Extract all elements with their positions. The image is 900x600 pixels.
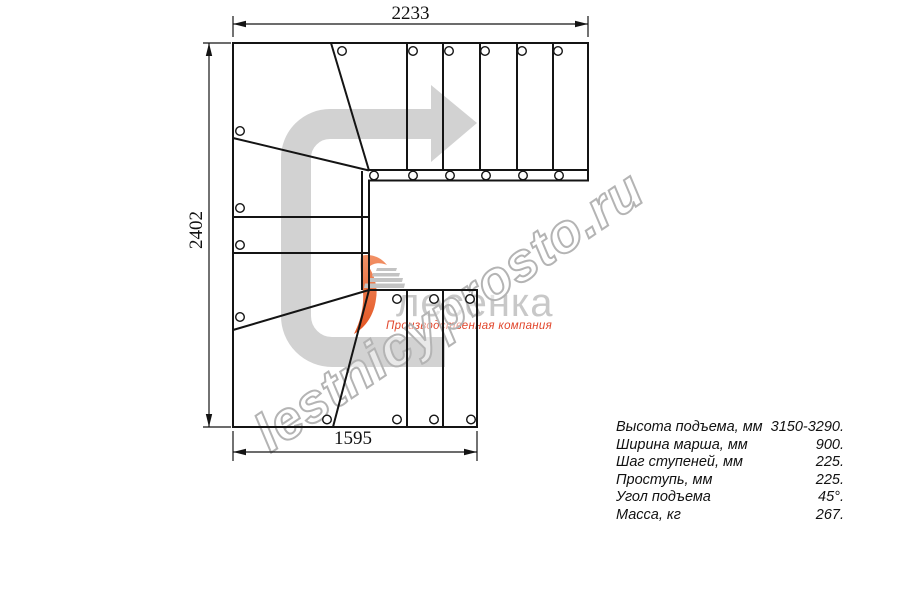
spec-label: Ширина марша, мм bbox=[616, 437, 748, 455]
spec-row-width: Ширина марша, мм 900. bbox=[616, 437, 844, 455]
spec-value: 225. bbox=[816, 454, 844, 472]
stair-drawing-page: { "dimensions": { "top": "2233", "left":… bbox=[0, 0, 900, 600]
spec-row-height: Высота подъема, мм 3150-3290. bbox=[616, 419, 844, 437]
spec-label: Высота подъема, мм bbox=[616, 419, 763, 437]
spec-label: Масса, кг bbox=[616, 507, 681, 525]
spec-value: 900. bbox=[816, 437, 844, 455]
dimension-bottom-label: 1595 bbox=[233, 428, 473, 450]
spec-value: 267. bbox=[816, 507, 844, 525]
spec-row-angle: Угол подъема 45°. bbox=[616, 489, 844, 507]
spec-value: 45°. bbox=[818, 489, 844, 507]
dimension-left-label: 2402 bbox=[186, 189, 208, 271]
spec-label: Угол подъема bbox=[616, 489, 711, 507]
spec-label: Шаг ступеней, мм bbox=[616, 454, 743, 472]
spec-value: 225. bbox=[816, 472, 844, 490]
spec-table: Высота подъема, мм 3150-3290. Ширина мар… bbox=[616, 419, 844, 524]
spec-label: Проступь, мм bbox=[616, 472, 712, 490]
spec-row-step: Шаг ступеней, мм 225. bbox=[616, 454, 844, 472]
spec-row-tread: Проступь, мм 225. bbox=[616, 472, 844, 490]
spec-value: 3150-3290. bbox=[771, 419, 844, 437]
dimension-top-label: 2233 bbox=[233, 3, 588, 25]
spec-row-mass: Масса, кг 267. bbox=[616, 507, 844, 525]
